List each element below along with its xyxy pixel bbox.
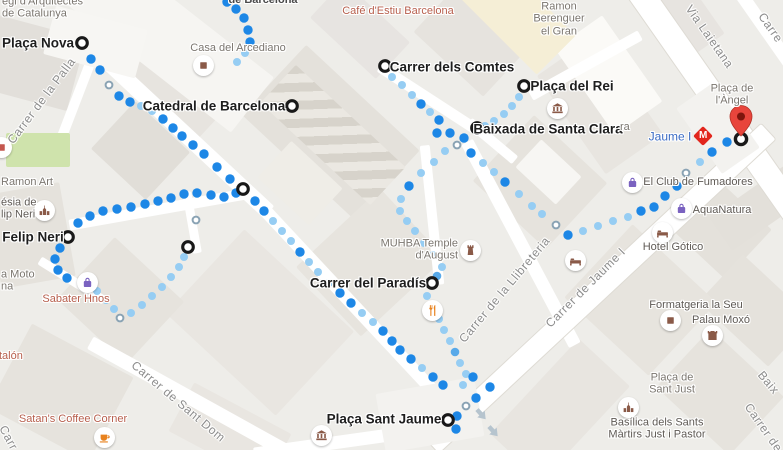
label-carrer-dels-comtes: Carrer dels Comtes <box>390 59 515 74</box>
castle-icon <box>706 329 719 342</box>
coffee-icon <box>98 431 111 444</box>
bag-icon <box>81 276 94 289</box>
label-ramon-berenguer-el-gran: RamonBerenguerel Gran <box>533 1 584 38</box>
formatgeria-icon[interactable] <box>660 310 681 331</box>
route-dot <box>432 128 441 137</box>
label-placa-sant-jaume: Plaça Sant Jaume <box>327 411 442 426</box>
label-muhba-temple-daugust-line-1: MUHBA Temple <box>381 238 458 250</box>
square-icon <box>664 314 677 327</box>
label-arquitectes-catalunya-cut-line-1: egi d'Arquitectes <box>2 0 83 8</box>
label-el-club-de-fumadores-line-1: El Club de Fumadores <box>643 176 752 188</box>
route-dot <box>636 206 645 215</box>
casa-arcediano-icon[interactable] <box>193 55 214 76</box>
restaurant-icon <box>426 304 439 317</box>
label-basilica-sants-martirs-line-2: Màrtirs Just i Pastor <box>608 429 705 441</box>
bank-icon <box>551 102 564 115</box>
route-dot <box>446 337 454 345</box>
label-casa-del-arcediano-line-1: Casa del Arcediano <box>190 42 285 54</box>
route-dot <box>579 227 587 235</box>
map-canvas[interactable]: M Plaça NovaCatedral de BarcelonaCarrer … <box>0 0 783 450</box>
label-talon-cut[interactable]: talón <box>0 350 23 362</box>
label-aquanatura[interactable]: AquaNatura <box>693 204 752 216</box>
label-placa-de-langel-line-1: Plaça de <box>711 83 754 95</box>
label-basilica-sants-martirs-line-1: Basílica dels Sants <box>608 417 705 429</box>
restaurant-icon[interactable] <box>422 300 443 321</box>
route-dot <box>397 195 405 203</box>
label-carrer-del-paradis-line-1: Carrer del Paradís <box>310 275 426 290</box>
label-basilica-sants-martirs[interactable]: Basílica dels SantsMàrtirs Just i Pastor <box>608 417 705 442</box>
route-dot <box>445 128 454 137</box>
esglesia-felip-neri-icon[interactable] <box>34 200 55 221</box>
sabater-hnos-icon[interactable] <box>77 272 98 293</box>
label-satans-coffee-corner[interactable]: Satan's Coffee Corner <box>19 413 127 425</box>
label-placa-de-sant-just: Plaça deSant Just <box>649 372 695 397</box>
basilica-icon[interactable] <box>618 397 639 418</box>
metro-m-glyph: M <box>699 131 707 141</box>
label-palau-moxo[interactable]: Palau Moxó <box>692 314 750 326</box>
route-dot <box>563 230 572 239</box>
satans-coffee-icon[interactable] <box>94 427 115 448</box>
waypoint-placa-del-rei[interactable] <box>519 81 530 92</box>
label-placa-sant-jaume-line-1: Plaça Sant Jaume <box>327 411 442 426</box>
label-placa-de-sant-just-line-2: Sant Just <box>649 384 695 396</box>
route-dot <box>167 273 175 281</box>
label-ramon-art: Ramon Art <box>1 176 53 188</box>
label-placa-nova-line-1: Plaça Nova <box>2 35 74 50</box>
label-moto-cut-line-1: a Moto <box>1 269 35 281</box>
route-dot <box>434 115 443 124</box>
route-via-dot <box>454 142 461 149</box>
label-baixada-de-santa-clara: Baixada de Santa Clara <box>473 121 622 136</box>
bed-icon <box>569 254 582 267</box>
label-arquitectes-catalunya-cut: egi d'Arquitectesde Catalunya <box>2 0 83 20</box>
street-carr-cut: Carr <box>0 423 20 450</box>
label-ramon-berenguer-el-gran-line-3: el Gran <box>533 25 584 37</box>
route-dot <box>440 326 448 334</box>
label-placa-del-rei: Plaça del Rei <box>530 78 613 93</box>
label-carrer-dels-comtes-line-1: Carrer dels Comtes <box>390 59 515 74</box>
church-icon <box>38 204 51 217</box>
route-dot <box>180 253 188 261</box>
label-de-barcelona-cut: de Barcelona <box>228 0 297 6</box>
route-dot <box>175 263 183 271</box>
route-via-dot <box>106 82 113 89</box>
route-dot <box>426 108 434 116</box>
bed-icon <box>656 226 669 239</box>
label-satans-coffee-corner-line-1: Satan's Coffee Corner <box>19 413 127 425</box>
muhba-tower-icon[interactable] <box>460 240 481 261</box>
label-esglesia-felip-neri-cut-line-2: lip Neri <box>1 209 36 221</box>
label-hotel-gotico-line-1: Hotel Gótico <box>643 241 704 253</box>
route-dot <box>508 102 516 110</box>
route-dot <box>594 222 602 230</box>
route-dot <box>515 93 523 101</box>
label-arquitectes-catalunya-cut-line-2: de Catalunya <box>2 8 83 20</box>
label-casa-del-arcediano: Casa del Arcediano <box>190 42 285 54</box>
el-club-de-fumadores-icon[interactable] <box>622 172 643 193</box>
ajuntament-icon[interactable] <box>311 425 332 446</box>
label-ra-cut-line-1: ra <box>620 121 630 133</box>
label-felip-neri-line-1: Felip Neri <box>2 229 64 244</box>
route-dot <box>624 213 632 221</box>
label-talon-cut-line-1: talón <box>0 350 23 362</box>
label-hotel-gotico[interactable]: Hotel Gótico <box>643 241 704 253</box>
label-sabater-hnos-line-1: Sabater Hnos <box>42 293 109 305</box>
label-cafe-destiu-barcelona[interactable]: Café d'Estiu Barcelona <box>342 5 454 17</box>
route-dot <box>696 158 704 166</box>
hotel-gotico-icon[interactable] <box>652 222 673 243</box>
label-jaume-i[interactable]: Jaume I <box>649 130 692 143</box>
label-ramon-berenguer-el-gran-line-1: Ramon <box>533 1 584 13</box>
label-muhba-temple-daugust-line-2: d'August <box>381 250 458 262</box>
label-moto-cut: a Motona <box>1 269 35 294</box>
church-icon <box>622 401 635 414</box>
label-moto-cut-line-2: na <box>1 281 35 293</box>
label-sabater-hnos[interactable]: Sabater Hnos <box>42 293 109 305</box>
label-palau-moxo-line-1: Palau Moxó <box>692 314 750 326</box>
route-dot <box>649 202 658 211</box>
route-dot <box>239 13 248 22</box>
label-ramon-art-line-1: Ramon Art <box>1 176 53 188</box>
bag-icon <box>675 202 688 215</box>
route-dot <box>404 181 413 190</box>
route-dot <box>114 91 123 100</box>
label-placa-de-langel-line-2: l'Àngel <box>711 95 754 107</box>
route-dot <box>441 147 449 155</box>
route-dot <box>423 292 431 300</box>
route-dot <box>456 359 464 367</box>
label-placa-de-sant-just-line-1: Plaça de <box>649 372 695 384</box>
label-jaume-i-line-1: Jaume I <box>649 130 692 143</box>
label-placa-del-rei-line-1: Plaça del Rei <box>530 78 613 93</box>
label-aquanatura-line-1: AquaNatura <box>693 204 752 216</box>
square-icon <box>0 141 8 154</box>
label-catedral-de-barcelona-line-1: Catedral de Barcelona <box>143 98 286 113</box>
bag-icon <box>626 176 639 189</box>
route-dot <box>243 25 252 34</box>
label-muhba-temple-daugust: MUHBA Templed'August <box>381 238 458 263</box>
label-carrer-del-paradis: Carrer del Paradís <box>310 275 426 290</box>
museum-placa-del-rei-icon[interactable] <box>547 98 568 119</box>
label-ramon-berenguer-el-gran-line-2: Berenguer <box>533 13 584 25</box>
label-catedral-de-barcelona: Catedral de Barcelona <box>143 98 286 113</box>
label-de-barcelona-cut-line-1: de Barcelona <box>228 0 297 6</box>
label-ra-cut: ra <box>620 121 630 133</box>
label-cafe-destiu-barcelona-line-1: Café d'Estiu Barcelona <box>342 5 454 17</box>
label-formatgeria-la-seu[interactable]: Formatgeria la Seu <box>649 299 743 311</box>
bank-icon <box>315 429 328 442</box>
route-dot <box>609 217 617 225</box>
square-icon <box>197 59 210 72</box>
palau-moxo-icon[interactable] <box>702 325 723 346</box>
route-dot <box>451 348 460 357</box>
label-baixada-de-santa-clara-line-1: Baixada de Santa Clara <box>473 121 622 136</box>
aquanatura-icon[interactable] <box>671 198 692 219</box>
route-dot <box>660 191 669 200</box>
label-placa-de-langel: Plaça del'Àngel <box>711 83 754 108</box>
label-esglesia-felip-neri-cut-line-1: ésia de <box>1 197 36 209</box>
label-el-club-de-fumadores[interactable]: El Club de Fumadores <box>643 176 752 188</box>
hotel-2-icon[interactable] <box>565 250 586 271</box>
route-dot <box>500 110 508 118</box>
street-shape <box>68 188 247 230</box>
street-carr-cut-line-1: Carr <box>0 423 20 450</box>
label-esglesia-felip-neri-cut[interactable]: ésia delip Neri <box>1 197 36 222</box>
tower-icon <box>464 244 477 257</box>
label-placa-nova: Plaça Nova <box>2 35 74 50</box>
label-formatgeria-la-seu-line-1: Formatgeria la Seu <box>649 299 743 311</box>
label-felip-neri: Felip Neri <box>2 229 64 244</box>
